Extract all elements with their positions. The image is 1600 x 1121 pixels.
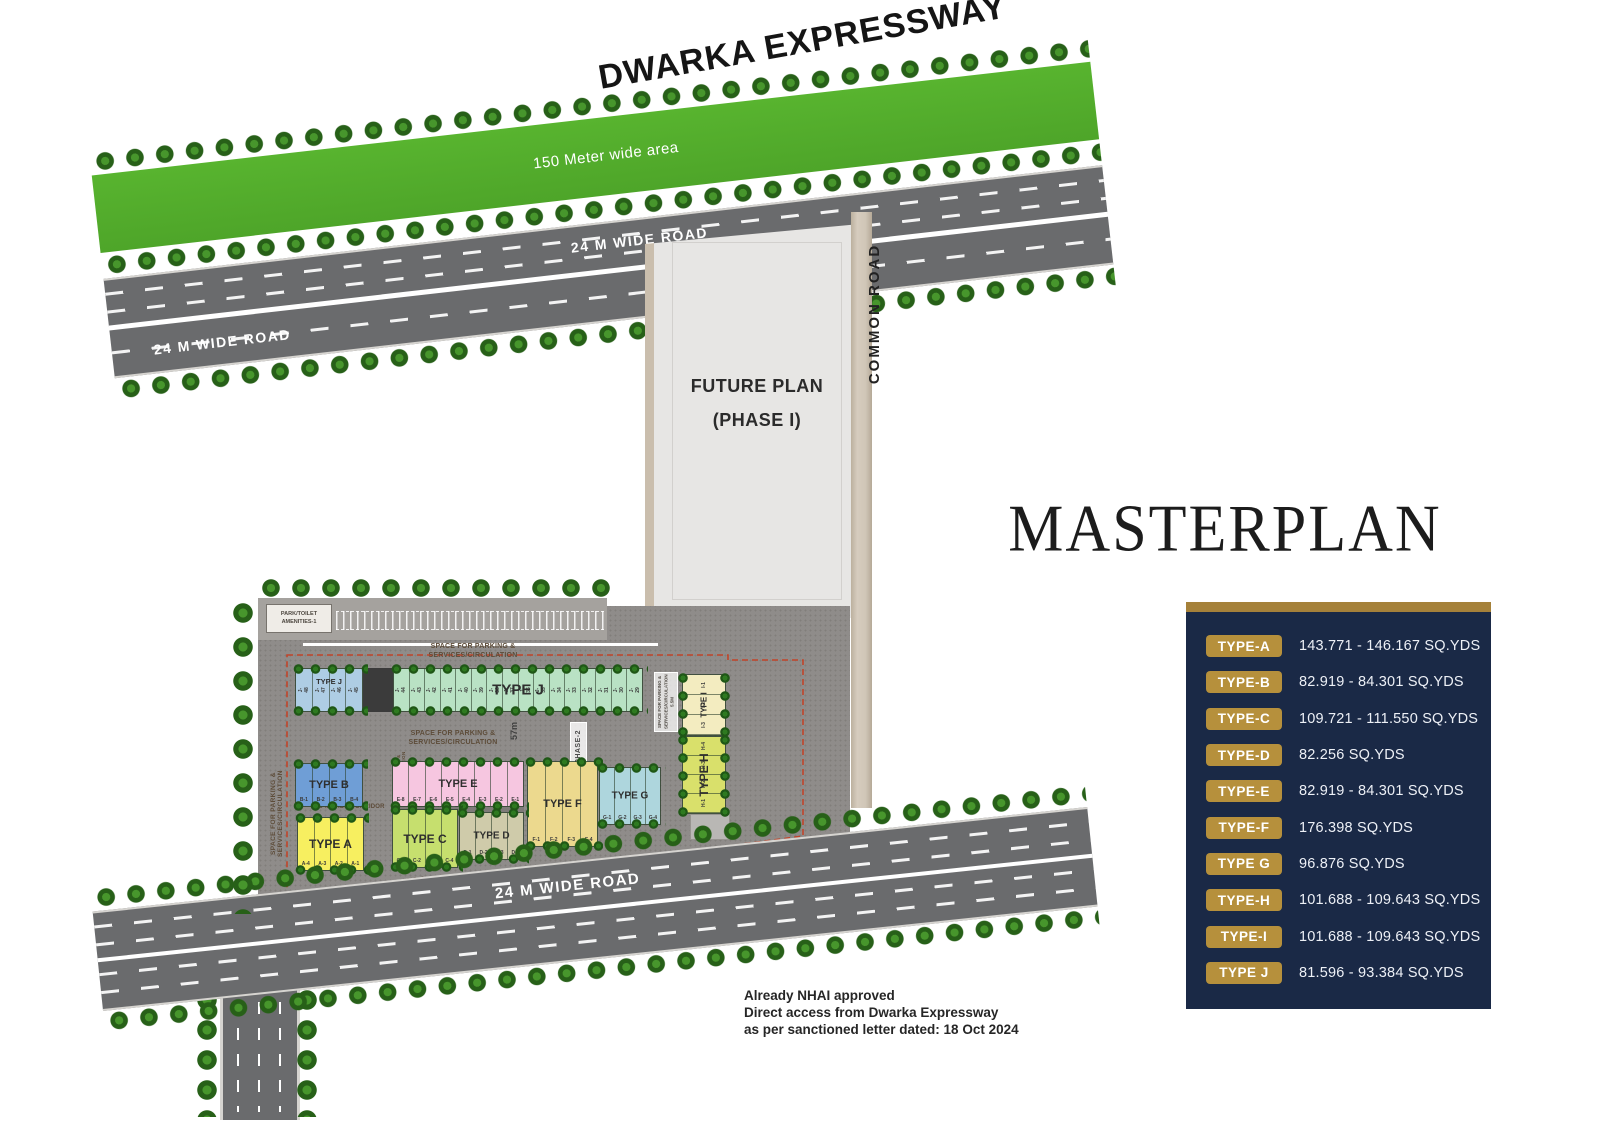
legend-value: 82.919 - 84.301 SQ.YDS: [1299, 783, 1464, 799]
masterplan-canvas: 150 Meter wide area 24 M WIDE ROAD 24 M …: [0, 0, 1600, 1121]
annotation-line3: as per sanctioned letter dated: 18 Oct 2…: [744, 1022, 1019, 1039]
plot-id: H-2: [701, 780, 707, 788]
plot-id: J-34: [551, 686, 563, 693]
legend-rows: TYPE-A143.771 - 146.167 SQ.YDSTYPE-B82.9…: [1186, 612, 1491, 1009]
plot-id: J-41: [442, 686, 454, 693]
plot-id: J-38: [489, 686, 501, 693]
annotation-line2: Direct access from Dwarka Expressway: [744, 1005, 1019, 1022]
plot-id: J-40: [458, 686, 470, 693]
plot-corner-trees-icon: [594, 762, 666, 774]
legend-value: 101.688 - 109.643 SQ.YDS: [1299, 892, 1480, 908]
parking-note-top: SPACE FOR PARKING & SERVICES/CIRCULATION: [388, 642, 558, 660]
plot-id: J-43: [411, 686, 423, 693]
legend-value: 82.919 - 84.301 SQ.YDS: [1299, 674, 1464, 690]
plot-id: J-45: [348, 686, 360, 694]
plot-id: J-30: [613, 686, 625, 693]
legend-type-badge: TYPE-H: [1206, 889, 1282, 911]
approval-annotation: Already NHAI approved Direct access from…: [744, 988, 1019, 1038]
plot-corner-trees-icon: [387, 804, 463, 816]
future-plan-line2: (PHASE I): [654, 410, 860, 431]
parking-note-line1: SPACE FOR PARKING &: [431, 643, 516, 650]
legend-type-badge: TYPE-E: [1206, 780, 1282, 802]
legend-value: 81.596 - 93.384 SQ.YDS: [1299, 965, 1464, 981]
plot-group-type-g: G-1G-2G-3G-4TYPE G: [599, 767, 661, 825]
legend-row: TYPE-F176.398 SQ.YDS: [1206, 809, 1491, 845]
plot-id: J-37: [504, 686, 516, 693]
plot: G-3: [631, 768, 646, 824]
plot-id: I-1: [701, 682, 707, 688]
future-plan-line1: FUTURE PLAN: [654, 376, 860, 397]
plot-corner-trees-icon: [290, 800, 368, 812]
legend-type-badge: TYPE J: [1206, 962, 1282, 984]
plot-corner-trees-icon: [290, 663, 368, 675]
legend-row: TYPE-A143.771 - 146.167 SQ.YDS: [1206, 628, 1491, 664]
plot-id: J-42: [426, 686, 438, 693]
parking-box-vertical-label: SPACE FOR PARKING & SERVICES/CIRCULATION…: [657, 673, 676, 731]
amenities-line1: PARK/TOILET: [281, 611, 317, 618]
plot-corner-trees-icon: [290, 705, 368, 717]
plot-corner-trees-icon: [387, 756, 529, 768]
future-plan-area: FUTURE PLAN (PHASE I): [645, 224, 860, 618]
legend-value: 109.721 - 111.550 SQ.YDS: [1299, 711, 1478, 727]
plot-corner-trees-icon: [290, 758, 368, 770]
common-road-label: COMMON ROAD: [866, 229, 884, 399]
plot-corner-trees-icon: [677, 731, 689, 819]
plot: F-1: [528, 762, 546, 846]
plot-id: J-36: [520, 686, 532, 693]
legend-panel: TYPE-A143.771 - 146.167 SQ.YDSTYPE-B82.9…: [1186, 602, 1491, 1009]
plot-group-type-e: E-8E-7E-6E-5E-4E-3E-2E-1TYPE E: [392, 761, 524, 807]
plot-corner-trees-icon: [388, 663, 648, 675]
legend-row: TYPE J81.596 - 93.384 SQ.YDS: [1206, 955, 1491, 991]
legend-row: TYPE-I101.688 - 109.643 SQ.YDS: [1206, 918, 1491, 954]
legend-value: 96.876 SQ.YDS: [1299, 856, 1405, 872]
legend-type-badge: TYPE-D: [1206, 744, 1282, 766]
plot-id: H-4: [701, 742, 707, 750]
plot: G-1: [600, 768, 615, 824]
plot-id: J-32: [582, 686, 594, 693]
parking-note-left-vertical: SPACE FOR PARKING & SERVICES/CIRCULATION: [270, 766, 284, 862]
legend-type-badge: TYPE-A: [1206, 635, 1282, 657]
legend-type-badge: TYPE-B: [1206, 671, 1282, 693]
legend-row: TYPE G96.876 SQ.YDS: [1206, 846, 1491, 882]
parking-note-line2: SERVICES/CIRCULATION: [409, 739, 498, 746]
plot-id: J-33: [566, 686, 578, 693]
legend-row: TYPE-H101.688 - 109.643 SQ.YDS: [1206, 882, 1491, 918]
legend-type-badge: TYPE-C: [1206, 708, 1282, 730]
legend-row: TYPE-B82.919 - 84.301 SQ.YDS: [1206, 664, 1491, 700]
amenities-box: PARK/TOILET AMENITIES-1: [266, 604, 332, 633]
plot-group-type-j-green: J-44J-43J-42J-41J-40J-39J-38J-37J-36J-35…: [393, 668, 643, 712]
parking-box-vertical: SPACE FOR PARKING & SERVICES/CIRCULATION…: [654, 672, 678, 732]
legend-value: 82.256 SQ.YDS: [1299, 747, 1405, 763]
plot-group-type-i: I-1I-2I-3TYPE I: [682, 674, 726, 736]
legend-type-badge: TYPE G: [1206, 853, 1282, 875]
plot-id: J-48: [298, 686, 310, 694]
plot-id: J-29: [629, 686, 641, 693]
legend-row: TYPE-C109.721 - 111.550 SQ.YDS: [1206, 701, 1491, 737]
plot-id: I-3: [701, 722, 707, 728]
plot: G-2: [615, 768, 630, 824]
legend-value: 143.771 - 146.167 SQ.YDS: [1299, 638, 1480, 654]
plot-row: G-1G-2G-3G-4: [600, 768, 660, 824]
plot-id: J-44: [395, 686, 407, 693]
plot-corner-trees-icon: [522, 756, 603, 768]
legend-row: TYPE-D82.256 SQ.YDS: [1206, 737, 1491, 773]
plot-group-type-h: H-4H-3H-2H-1TYPE H: [682, 736, 726, 814]
page-title: MASTERPLAN: [975, 491, 1475, 568]
plot-id: J-35: [535, 686, 547, 693]
annotation-line1: Already NHAI approved: [744, 988, 1019, 1005]
plot: G-4: [646, 768, 660, 824]
amenities-line2: AMENITIES-1: [282, 619, 317, 626]
plot-id: H-1: [701, 799, 707, 807]
parking-stalls: [336, 611, 604, 630]
parking-note-line1: SPACE FOR PARKING &: [411, 730, 496, 737]
legend-row: TYPE-E82.919 - 84.301 SQ.YDS: [1206, 773, 1491, 809]
tree-row-icon: [256, 576, 612, 600]
legend-type-badge: TYPE-I: [1206, 926, 1282, 948]
plot-corner-trees-icon: [388, 705, 648, 717]
plot: F-2: [546, 762, 564, 846]
plot-id: J-46: [331, 686, 343, 694]
plot-id: J-31: [598, 686, 610, 693]
legend-gold-bar: [1186, 602, 1491, 612]
plot-id: J-47: [315, 686, 327, 694]
plot-corner-trees-icon: [292, 812, 369, 824]
legend-type-badge: TYPE-F: [1206, 817, 1282, 839]
plot-group-type-j-blue: J-48J-47J-46J-45TYPE J: [295, 668, 363, 712]
plot-group-type-b: B-1B-2B-3B-4TYPE B: [295, 763, 363, 807]
plot-id: H-3: [701, 761, 707, 769]
plot-corner-trees-icon: [454, 807, 529, 819]
parking-note-line2: SERVICES/CIRCULATION: [429, 652, 518, 659]
plot-corner-trees-icon: [719, 731, 731, 819]
legend-value: 176.398 SQ.YDS: [1299, 820, 1413, 836]
plot-id: J-39: [473, 686, 485, 693]
legend-value: 101.688 - 109.643 SQ.YDS: [1299, 929, 1480, 945]
plot-id: I-2: [701, 702, 707, 708]
dimension-label: 57m: [509, 722, 519, 740]
tree-row-icon: [228, 596, 258, 914]
